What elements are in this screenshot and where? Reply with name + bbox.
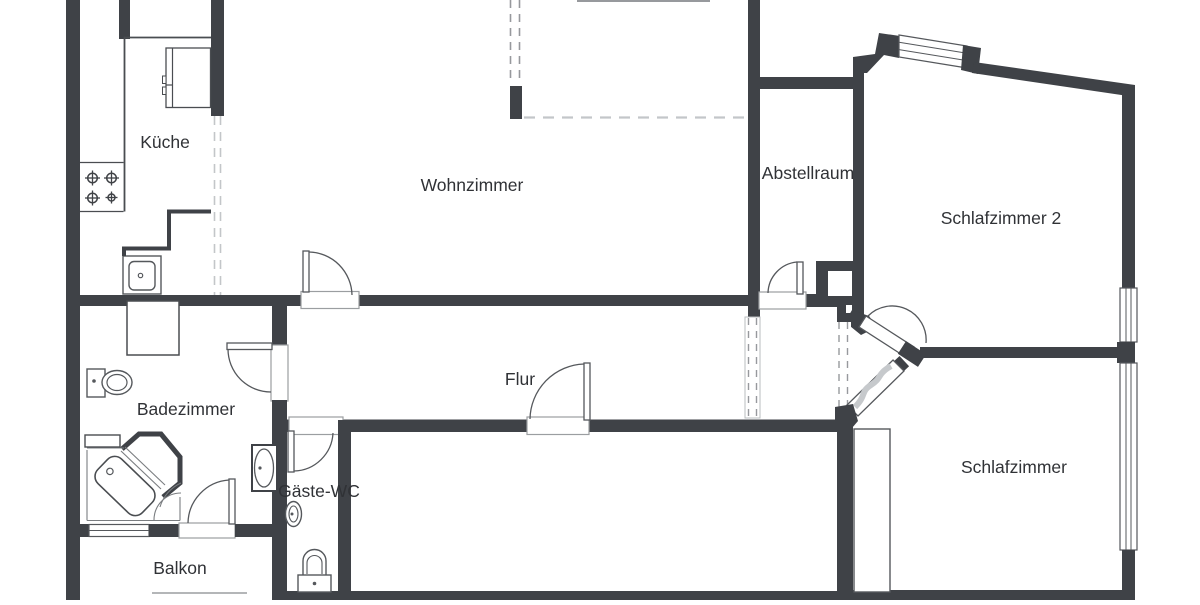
svg-text:Küche: Küche xyxy=(140,132,190,152)
svg-text:Gäste-WC: Gäste-WC xyxy=(278,481,360,501)
svg-text:Schlafzimmer 2: Schlafzimmer 2 xyxy=(941,208,1062,228)
svg-text:Wohnzimmer: Wohnzimmer xyxy=(421,175,524,195)
svg-text:Flur: Flur xyxy=(505,369,535,389)
svg-text:Schlafzimmer: Schlafzimmer xyxy=(961,457,1067,477)
svg-text:Badezimmer: Badezimmer xyxy=(137,399,235,419)
svg-text:Balkon: Balkon xyxy=(153,558,207,578)
svg-text:Abstellraum: Abstellraum xyxy=(762,163,854,183)
